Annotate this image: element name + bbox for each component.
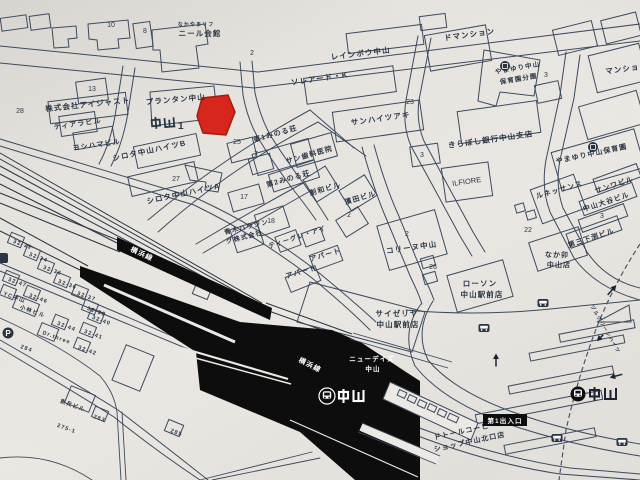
- svg-text:23: 23: [406, 99, 414, 106]
- svg-text:27: 27: [172, 176, 180, 183]
- svg-text:中山駅前店: 中山駅前店: [377, 319, 420, 329]
- svg-text:2: 2: [250, 50, 254, 57]
- svg-text:17: 17: [240, 194, 248, 201]
- svg-text:26: 26: [429, 264, 437, 271]
- svg-text:25: 25: [233, 139, 241, 146]
- svg-text:なかやまリフ: なかやまリフ: [178, 21, 215, 28]
- svg-text:2: 2: [347, 212, 351, 219]
- svg-text:中山: 中山: [365, 364, 380, 373]
- svg-text:10: 10: [107, 22, 115, 29]
- svg-text:P: P: [5, 329, 11, 338]
- svg-text:ニール会館: ニール会館: [179, 28, 222, 38]
- svg-text:3: 3: [600, 213, 604, 220]
- svg-text:13: 13: [88, 86, 96, 93]
- svg-text:ニューデイズ: ニューデイズ: [349, 354, 394, 363]
- svg-text:1: 1: [178, 121, 184, 132]
- svg-text:3: 3: [420, 152, 424, 159]
- svg-text:7: 7: [254, 151, 258, 158]
- svg-text:中山駅前店: 中山駅前店: [461, 289, 504, 299]
- svg-text:第1出入口: 第1出入口: [487, 416, 522, 425]
- svg-text:3: 3: [544, 72, 548, 79]
- svg-text:中山店: 中山店: [547, 260, 571, 269]
- svg-text:8: 8: [143, 28, 147, 35]
- svg-text:ローソン: ローソン: [463, 279, 497, 288]
- svg-text:サイゼリヤ: サイゼリヤ: [376, 308, 419, 318]
- svg-text:22: 22: [524, 227, 532, 234]
- svg-text:2: 2: [405, 231, 409, 238]
- svg-text:なか卯: なか卯: [545, 250, 569, 259]
- svg-text:28: 28: [16, 108, 24, 115]
